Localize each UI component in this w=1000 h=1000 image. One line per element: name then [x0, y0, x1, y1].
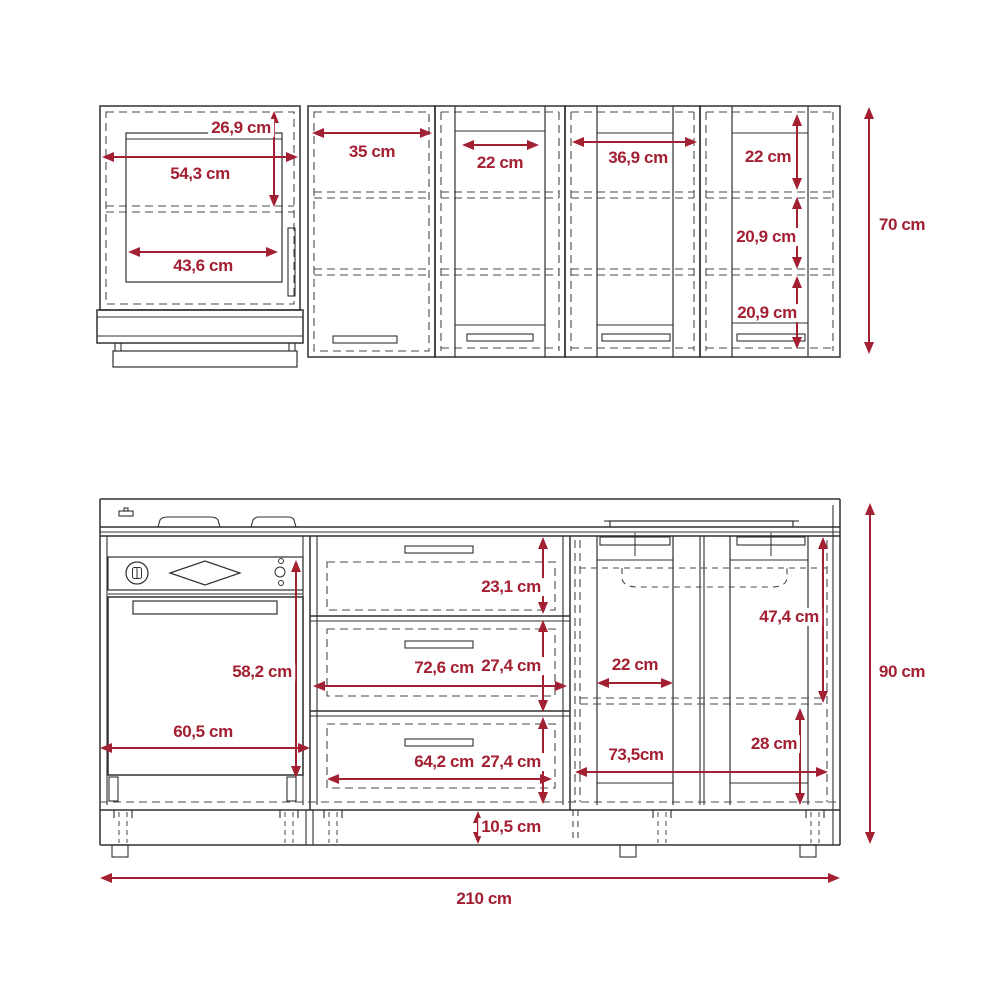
sink-rim: [604, 521, 799, 527]
range-hood: [97, 310, 303, 367]
adjustable-feet: [112, 810, 824, 857]
drawer-handle: [405, 641, 473, 648]
door-handle: [602, 334, 670, 341]
upper-cabinet-1: [100, 106, 300, 310]
oven-door-handle: [133, 601, 277, 614]
oven-door: [108, 597, 303, 775]
drawer-handle: [405, 739, 473, 746]
plinth: [100, 802, 840, 845]
door-handle: [467, 334, 533, 341]
door-handle: [737, 334, 805, 341]
upper-cabinet-3: [435, 106, 565, 357]
kitchen-dimension-drawing: 26,9 cm54,3 cm43,6 cm35 cm22 cm36,9 cm22…: [0, 0, 1000, 1000]
upper-cabinet-2: [308, 106, 435, 357]
oven-indicator-lights: [275, 559, 285, 586]
cooktop-burners-icon: [119, 508, 296, 527]
drawer-unit: [310, 536, 570, 810]
oven-unit: [100, 499, 303, 845]
oven-diamond-logo-icon: [170, 561, 240, 585]
door-handle: [333, 336, 397, 343]
cabinet-line-art: [0, 0, 1000, 1000]
drawer-handle: [405, 546, 473, 553]
upper-cabinet-5: [700, 106, 840, 357]
sink-cabinet: [575, 499, 840, 845]
upper-cabinet-4: [565, 106, 700, 357]
